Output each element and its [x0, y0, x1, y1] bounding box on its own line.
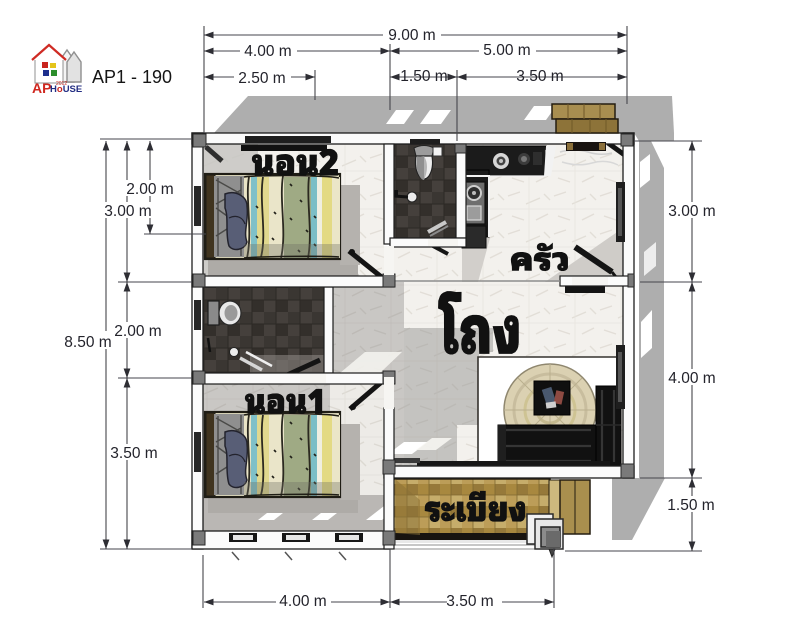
svg-text:AP1 - 190: AP1 - 190: [92, 67, 172, 87]
svg-text:3.50 m: 3.50 m: [446, 593, 493, 610]
svg-text:3.50 m: 3.50 m: [110, 445, 157, 462]
svg-text:9.00 m: 9.00 m: [388, 27, 435, 44]
svg-text:5.00 m: 5.00 m: [483, 42, 530, 59]
svg-text:1.50 m: 1.50 m: [400, 68, 447, 85]
svg-text:2012: 2012: [56, 81, 67, 87]
svg-text:4.00 m: 4.00 m: [244, 43, 291, 60]
svg-text:2.50 m: 2.50 m: [238, 70, 285, 87]
svg-text:3.00 m: 3.00 m: [668, 203, 715, 220]
svg-text:3.00 m: 3.00 m: [104, 203, 151, 220]
svg-text:2.00 m: 2.00 m: [126, 181, 173, 198]
svg-text:4.00 m: 4.00 m: [668, 370, 715, 387]
svg-text:4.00 m: 4.00 m: [279, 593, 326, 610]
svg-text:3.50 m: 3.50 m: [516, 68, 563, 85]
svg-text:8.50 m: 8.50 m: [64, 334, 111, 351]
svg-text:1.50 m: 1.50 m: [667, 497, 714, 514]
svg-text:AP: AP: [32, 80, 51, 96]
svg-text:2.00 m: 2.00 m: [114, 323, 161, 340]
